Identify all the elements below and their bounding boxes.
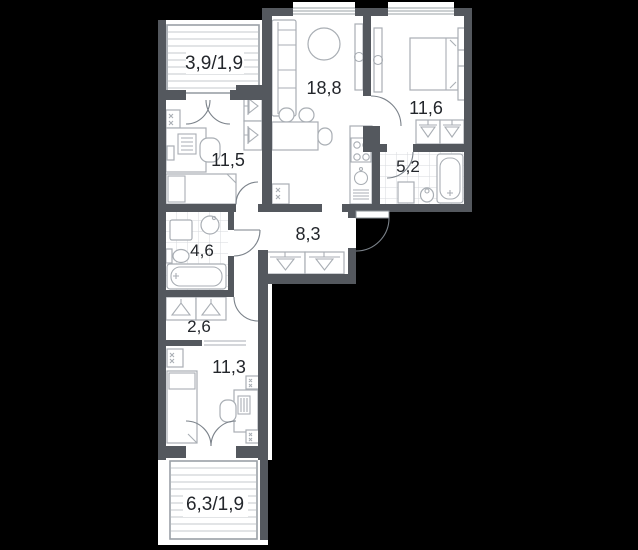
floor-plan: 3,9/1,9 18,8 11,6 11,5 5,2 4,6 8,3 2,6 1…	[0, 0, 638, 550]
radiator-115-icon	[166, 110, 180, 128]
hallway-wardrobes-icon	[266, 252, 344, 274]
area-label-bathroom-small: 5,2	[396, 157, 420, 176]
bathtub-small-icon	[437, 154, 463, 203]
round-table-icon	[308, 28, 340, 60]
area-label-corridor: 2,6	[187, 317, 211, 336]
bed-113-icon	[167, 371, 197, 443]
sink-46-icon	[201, 216, 219, 234]
toilet-46-icon	[166, 249, 189, 263]
area-label-bedroom-bottom: 11,3	[212, 357, 246, 377]
radiator-113-top-icon	[167, 349, 183, 367]
area-label-bedroom-left: 11,5	[211, 150, 245, 170]
wardrobe-115-icon	[244, 92, 262, 150]
washing-machine-icon	[170, 220, 192, 240]
radiator-left-icon	[355, 24, 364, 90]
toilet-small-icon	[421, 188, 434, 202]
bathtub-46-icon	[167, 264, 226, 289]
area-label-balcony-bottom: 6,3/1,9	[186, 494, 244, 515]
sofa-icon	[272, 20, 296, 116]
area-label-living-room: 18,8	[306, 78, 341, 98]
wardrobe-bedroom-right-icon	[416, 120, 464, 144]
desk-chair-113-icon	[220, 400, 236, 422]
shoe-cabinet-icon	[272, 184, 289, 204]
washing-machine-small-icon	[398, 182, 414, 203]
area-label-hallway: 8,3	[295, 224, 320, 244]
bed-115-icon	[166, 174, 236, 204]
radiator-right-icon	[374, 28, 383, 92]
area-label-balcony-top: 3,9/1,9	[185, 53, 243, 74]
area-label-bathroom-large: 4,6	[190, 241, 214, 260]
area-label-bedroom-right: 11,6	[409, 98, 443, 118]
floor-plan-page: 3,9/1,9 18,8 11,6 11,5 5,2 4,6 8,3 2,6 1…	[0, 0, 638, 550]
